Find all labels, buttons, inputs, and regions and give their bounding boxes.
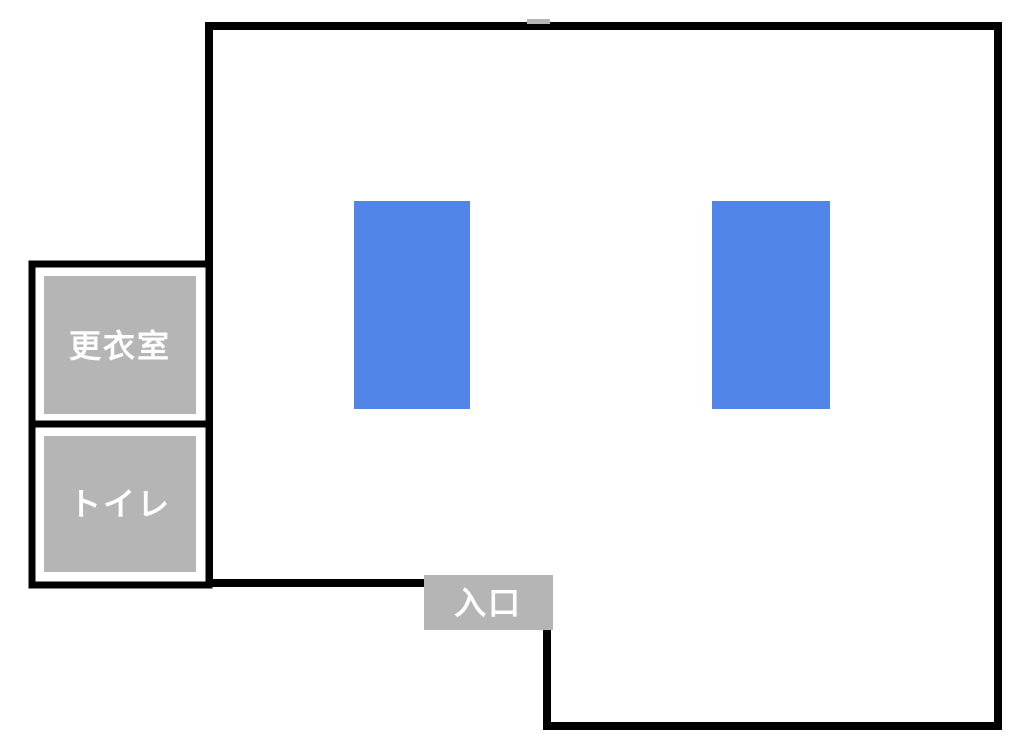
blue-area-right <box>712 201 830 409</box>
entrance: 入口 <box>424 575 553 630</box>
entrance-label: 入口 <box>454 585 522 621</box>
blue-area-left <box>354 201 470 409</box>
toilet-room-label: トイレ <box>69 486 171 522</box>
changing-room-label: 更衣室 <box>69 328 171 364</box>
top-wall-partial-label <box>527 19 550 24</box>
floor-plan: 更衣室 トイレ 入口 <box>0 0 1024 752</box>
changing-room: 更衣室 <box>32 264 209 424</box>
floor-plan-canvas: 更衣室 トイレ 入口 <box>0 0 1024 752</box>
toilet-room: トイレ <box>32 424 209 585</box>
